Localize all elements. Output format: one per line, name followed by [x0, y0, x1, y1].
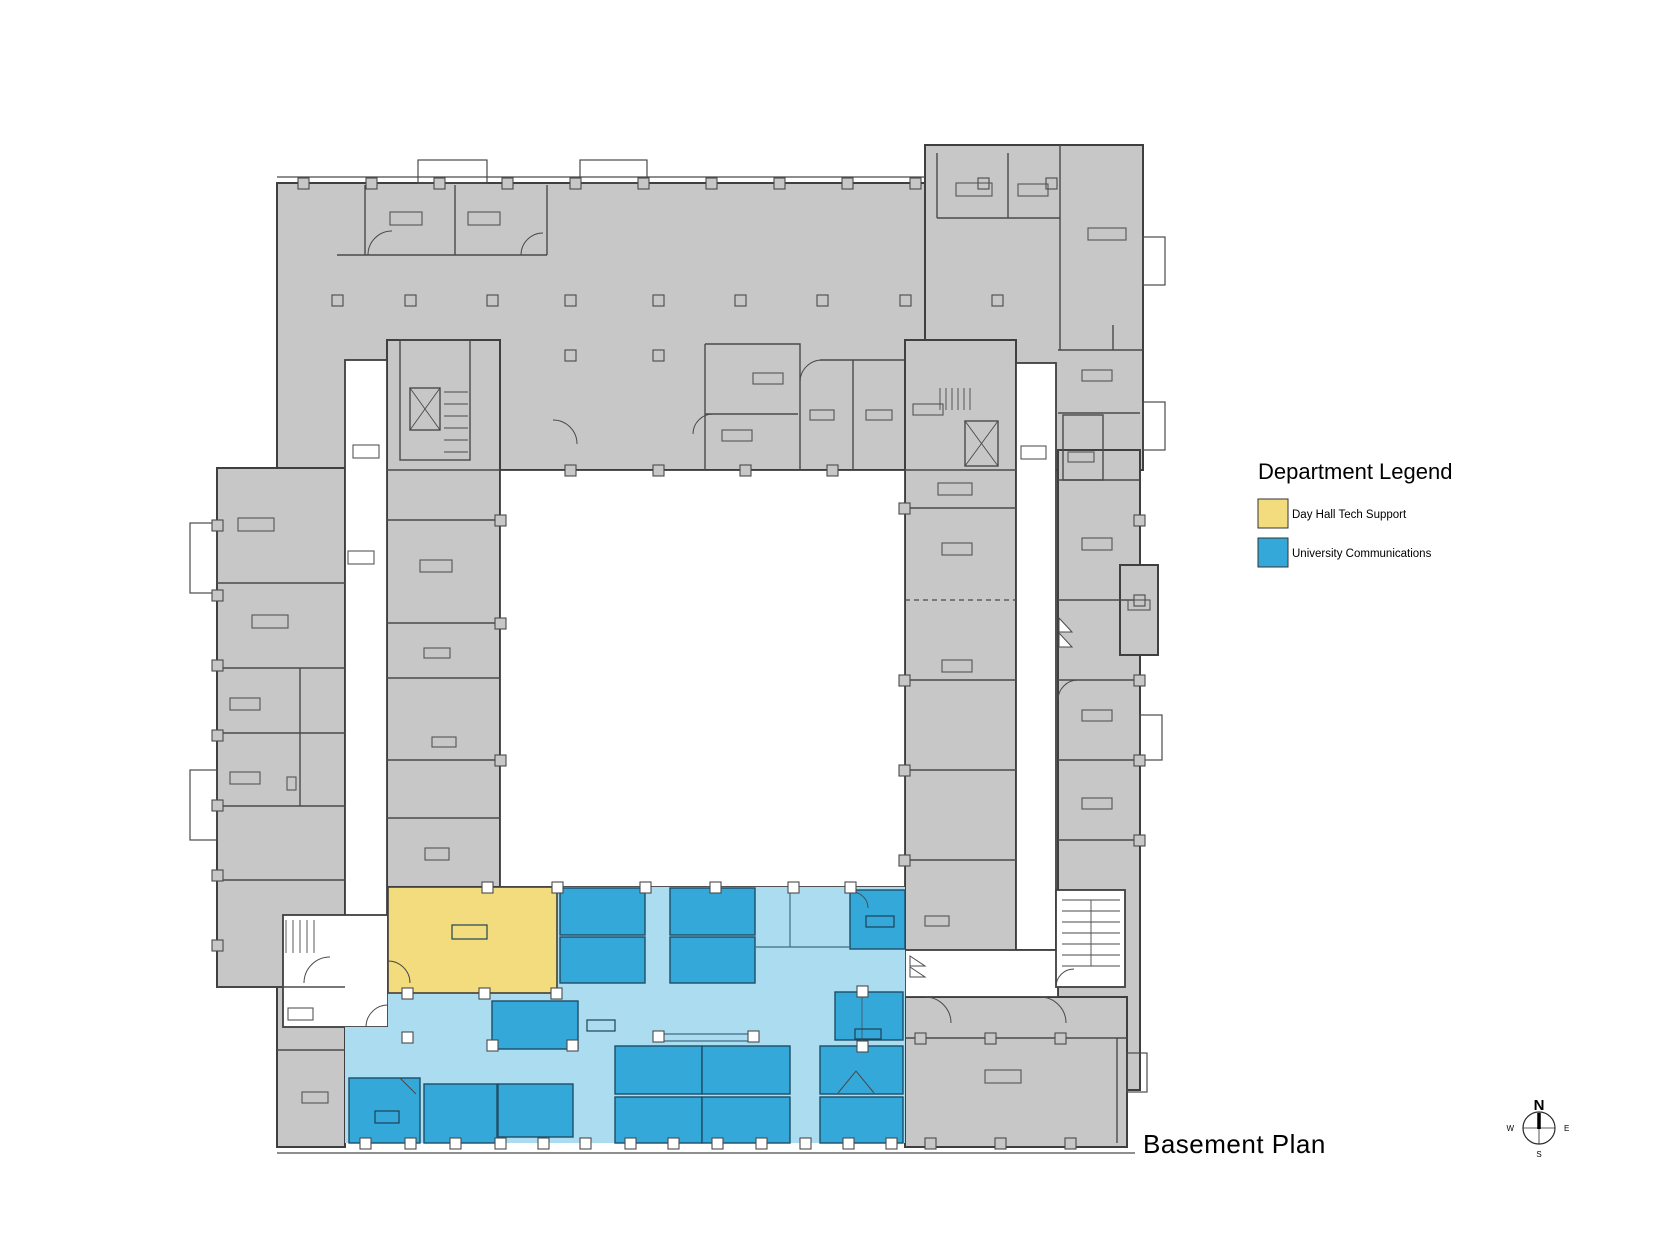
- legend-label-university-communications: University Communications: [1292, 548, 1432, 560]
- compass-rose: N W E S: [1506, 1097, 1569, 1159]
- southwest-corridor: [283, 915, 388, 1027]
- day-hall-tech-support-room: [388, 887, 557, 993]
- plan-title: Basement Plan: [1143, 1129, 1326, 1159]
- department-areas: [345, 887, 905, 1143]
- compass-east: E: [1564, 1124, 1569, 1133]
- basement-plan-page: Department Legend Day Hall Tech Support …: [0, 0, 1667, 1250]
- compass-west: W: [1506, 1124, 1514, 1133]
- department-legend: Department Legend Day Hall Tech Support …: [1258, 459, 1452, 567]
- west-wing-outer: [217, 468, 345, 987]
- courtyard: [500, 470, 905, 887]
- floor-plan: Department Legend Day Hall Tech Support …: [0, 0, 1667, 1250]
- east-wing-outer: [1058, 450, 1140, 1090]
- compass-south: S: [1536, 1150, 1541, 1159]
- east-stair-room: [1056, 890, 1125, 987]
- southeast-block: [905, 997, 1127, 1147]
- east-wing-inner: [905, 340, 1016, 997]
- east-corridor: [905, 950, 1058, 997]
- west-wing-inner: [387, 340, 500, 887]
- legend-title: Department Legend: [1258, 459, 1452, 484]
- west-light-well: [345, 360, 387, 965]
- legend-label-day-hall: Day Hall Tech Support: [1292, 509, 1407, 521]
- compass-north: N: [1534, 1097, 1545, 1114]
- east-light-well: [1016, 363, 1056, 950]
- legend-swatch-day-hall: [1258, 499, 1288, 528]
- legend-swatch-university-communications: [1258, 538, 1288, 567]
